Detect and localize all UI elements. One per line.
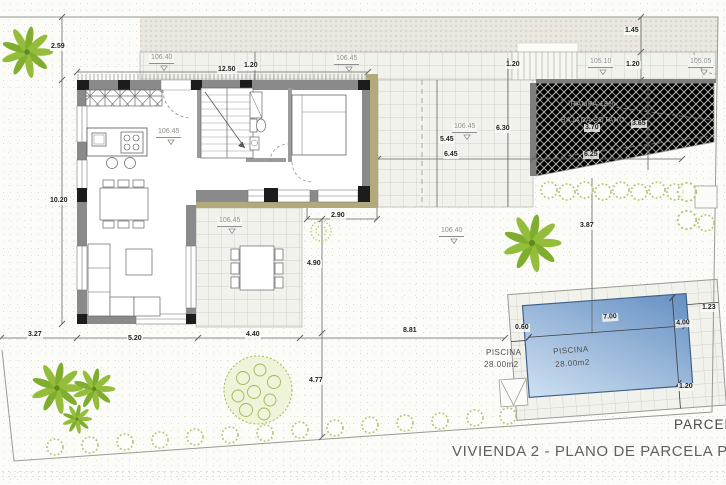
palm-tree [31,362,83,414]
boundary-bush-row [47,408,516,455]
dim-bottom-seg3: 4.40 [245,331,261,339]
stool [125,158,136,169]
level-marker-walkway-right: 106.45 [334,55,359,65]
swimming-pool [523,294,693,398]
dim-ramp-side: 6.30 [495,125,511,133]
dim-street-depth: 1.45 [624,27,640,35]
outdoor-table [240,246,274,290]
dim-garden-south-depth: 4.77 [308,377,324,385]
dim-plot-left-height: 10.20 [49,197,69,205]
dim-south-opening: 2.90 [330,212,346,220]
dim-terrace-east-height: 5.45 [439,136,455,144]
ramp-label-line2: BAJADA SÓTANO [545,117,641,125]
level-marker-garden: 106.40 [439,227,464,237]
dim-pool-width: 4.00 [675,319,691,328]
sofa [88,244,110,316]
parcel-label: PARCELA [674,418,726,433]
dim-bottom-seg2: 5.20 [127,335,143,343]
corner-planters [678,183,717,231]
plan-drawing [0,0,726,485]
dim-pool-gap-right: 1.23 [701,304,717,312]
hedge-row [541,182,683,200]
pool-label-outside-name: PISCINA [486,349,522,358]
dim-pool-length: 7.00 [602,313,618,322]
dim-garden-east-gap: 3.87 [579,222,595,230]
basement-ramp [530,79,716,176]
site-plan: 106.40 106.45 105.10 105.05 106.45 106.4… [0,0,726,485]
dim-pool-gap-bottom: 1.20 [678,383,694,391]
level-marker-terrace-south: 106.45 [217,217,242,227]
drawing-title: VIVIENDA 2 - PLANO DE PARCELA P.BAJA [452,444,726,461]
terrace-dining [231,246,283,290]
dim-ramp-length: 6.25 [583,151,599,159]
large-bush [224,356,292,424]
ramp-label-line1: RAMPA 18% [545,101,641,109]
dim-ramp-width-top: 3.70 [584,124,600,132]
level-marker-interior: 106.45 [156,128,181,138]
dim-pool-gap-left: 0.60 [514,324,530,332]
coffee-table [126,249,152,275]
pool-area [508,279,726,420]
dim-walkway-right-depth: 1.20 [625,61,641,69]
dim-bottom-seg4: 8.81 [402,327,418,335]
dining-table [100,188,148,220]
outdoor-shower [499,378,528,407]
level-marker-street-left: 105.10 [588,58,613,68]
level-marker-terrace-east: 106.45 [452,123,477,133]
level-marker-street-right: 105.05 [688,58,713,68]
bed [292,95,346,155]
road-texture-band [0,469,726,480]
small-shrub [311,221,331,241]
dim-terrace-south-depth: 4.90 [306,260,322,268]
dim-bottom-seg1: 3.27 [27,331,43,339]
stool [107,158,118,169]
dim-house-width: 12.50 [217,66,237,74]
palm-tree [1,26,53,78]
palm-tree [503,214,562,273]
dim-terrace-east-width: 6.45 [443,151,459,159]
dim-setback-top: 2.59 [50,43,66,51]
dim-steps-width: 1.20 [505,61,521,69]
level-marker-walkway-left: 106.40 [149,54,174,64]
palm-tree [62,404,92,434]
pool-label-outside-area: 28.00m2 [484,361,519,370]
dim-walkway-depth: 1.20 [243,62,259,70]
staircase [201,88,253,158]
